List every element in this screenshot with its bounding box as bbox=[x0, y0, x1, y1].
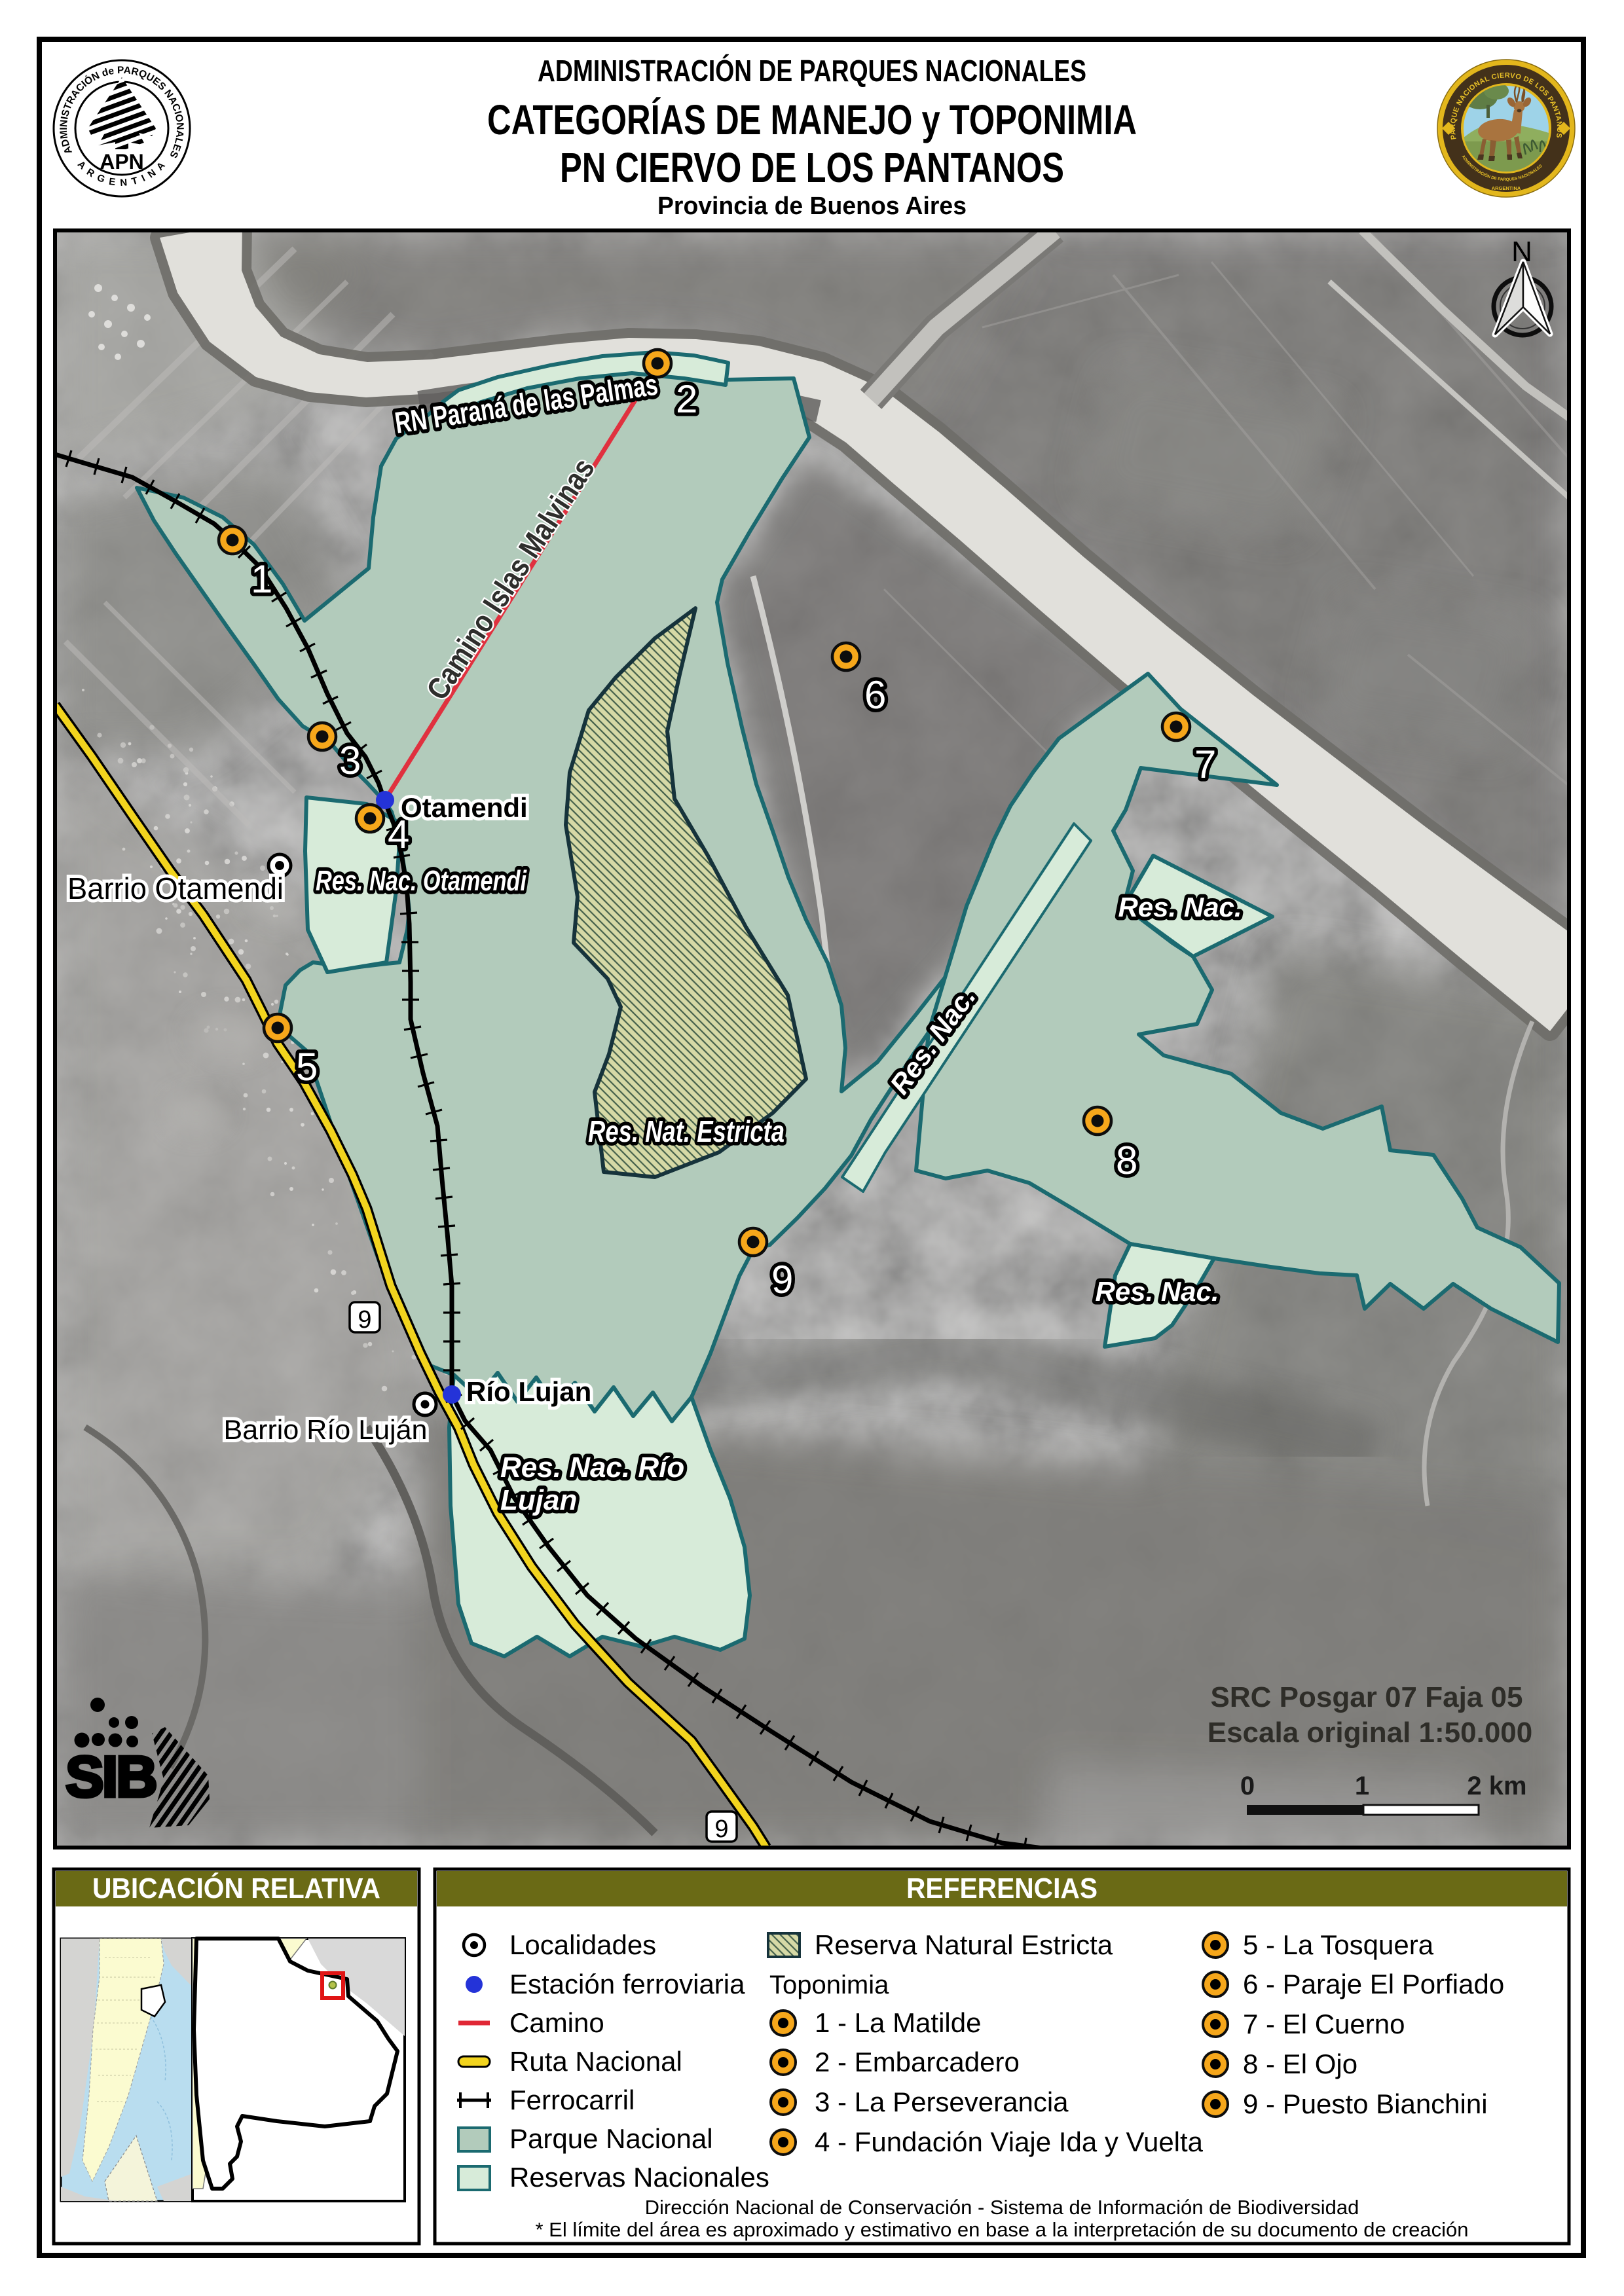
svg-text:Res. Nac.: Res. Nac. bbox=[1118, 892, 1242, 922]
svg-text:ARGENTINA: ARGENTINA bbox=[1492, 185, 1521, 191]
svg-text:UBICACIÓN RELATIVA: UBICACIÓN RELATIVA bbox=[92, 1872, 380, 1904]
svg-text:PN CIERVO DE LOS PANTANOS: PN CIERVO DE LOS PANTANOS bbox=[560, 144, 1064, 191]
svg-text:Ruta Nacional: Ruta Nacional bbox=[509, 2046, 682, 2077]
svg-text:Camino: Camino bbox=[509, 2007, 604, 2038]
svg-text:1: 1 bbox=[251, 557, 272, 601]
svg-text:Res. Nac. Río: Res. Nac. Río bbox=[500, 1451, 684, 1484]
svg-text:0: 0 bbox=[1240, 1772, 1255, 1800]
svg-text:5 - La Tosquera: 5 - La Tosquera bbox=[1243, 1929, 1434, 1960]
svg-text:Toponimia: Toponimia bbox=[769, 1971, 889, 1999]
svg-text:Provincia de Buenos Aires: Provincia de Buenos Aires bbox=[657, 192, 967, 220]
svg-text:REFERENCIAS: REFERENCIAS bbox=[906, 1872, 1098, 1904]
svg-text:Barrio Otamendi: Barrio Otamendi bbox=[67, 871, 284, 905]
svg-text:Localidades: Localidades bbox=[509, 1929, 656, 1960]
svg-text:9: 9 bbox=[358, 1306, 371, 1334]
svg-text:* El límite del área es aproxi: * El límite del área es aproximado y est… bbox=[535, 2218, 1468, 2241]
svg-text:9: 9 bbox=[771, 1258, 793, 1302]
svg-text:Parque Nacional: Parque Nacional bbox=[509, 2123, 713, 2154]
svg-text:Barrio Río Luján: Barrio Río Luján bbox=[224, 1414, 428, 1445]
svg-text:Res. Nac.: Res. Nac. bbox=[1095, 1276, 1219, 1307]
svg-text:Ferrocarril: Ferrocarril bbox=[509, 2085, 635, 2115]
svg-text:SIB: SIB bbox=[65, 1744, 156, 1809]
svg-text:1 - La Matilde: 1 - La Matilde bbox=[815, 2007, 981, 2038]
svg-text:9: 9 bbox=[714, 1815, 728, 1843]
svg-text:Dirección Nacional de Conserva: Dirección Nacional de Conservación - Sis… bbox=[645, 2196, 1359, 2219]
svg-text:Lujan: Lujan bbox=[500, 1484, 577, 1516]
svg-text:Reserva Natural Estricta: Reserva Natural Estricta bbox=[815, 1929, 1113, 1960]
svg-text:3 - La Perseverancia: 3 - La Perseverancia bbox=[815, 2086, 1069, 2117]
svg-text:8 - El Ojo: 8 - El Ojo bbox=[1243, 2049, 1357, 2079]
svg-text:2: 2 bbox=[676, 377, 697, 421]
svg-text:Estación ferroviaria: Estación ferroviaria bbox=[509, 1969, 745, 1999]
svg-text:ADMINISTRACIÓN DE PARQUES NACI: ADMINISTRACIÓN DE PARQUES NACIONALES bbox=[538, 54, 1086, 88]
svg-text:3: 3 bbox=[339, 738, 361, 782]
svg-text:8: 8 bbox=[1116, 1139, 1137, 1182]
svg-text:4 - Fundación Viaje Ida y Vuel: 4 - Fundación Viaje Ida y Vuelta bbox=[815, 2126, 1204, 2157]
svg-text:Res. Nat. Estricta: Res. Nat. Estricta bbox=[588, 1114, 784, 1148]
svg-text:6: 6 bbox=[864, 673, 886, 717]
svg-text:Otamendi: Otamendi bbox=[401, 792, 528, 823]
svg-text:9 - Puesto Bianchini: 9 - Puesto Bianchini bbox=[1243, 2088, 1488, 2119]
svg-text:SRC Posgar 07 Faja 05: SRC Posgar 07 Faja 05 bbox=[1211, 1681, 1523, 1713]
svg-text:7 - El Cuerno: 7 - El Cuerno bbox=[1243, 2009, 1405, 2039]
svg-text:Río Lujan: Río Lujan bbox=[466, 1376, 591, 1407]
svg-text:CATEGORÍAS DE MANEJO y TOPONIM: CATEGORÍAS DE MANEJO y TOPONIMIA bbox=[487, 96, 1137, 143]
svg-text:5: 5 bbox=[296, 1045, 318, 1089]
svg-text:2 km: 2 km bbox=[1467, 1772, 1526, 1800]
svg-text:6 - Paraje El Porfiado: 6 - Paraje El Porfiado bbox=[1243, 1969, 1504, 1999]
svg-text:1: 1 bbox=[1355, 1772, 1369, 1800]
svg-text:Escala original 1:50.000: Escala original 1:50.000 bbox=[1208, 1717, 1533, 1749]
svg-text:APN: APN bbox=[100, 150, 144, 173]
svg-text:7: 7 bbox=[1194, 742, 1216, 786]
svg-text:2 - Embarcadero: 2 - Embarcadero bbox=[815, 2047, 1020, 2077]
svg-text:Reservas Nacionales: Reservas Nacionales bbox=[509, 2162, 769, 2193]
svg-text:Res. Nac. Otamendi: Res. Nac. Otamendi bbox=[316, 865, 527, 897]
